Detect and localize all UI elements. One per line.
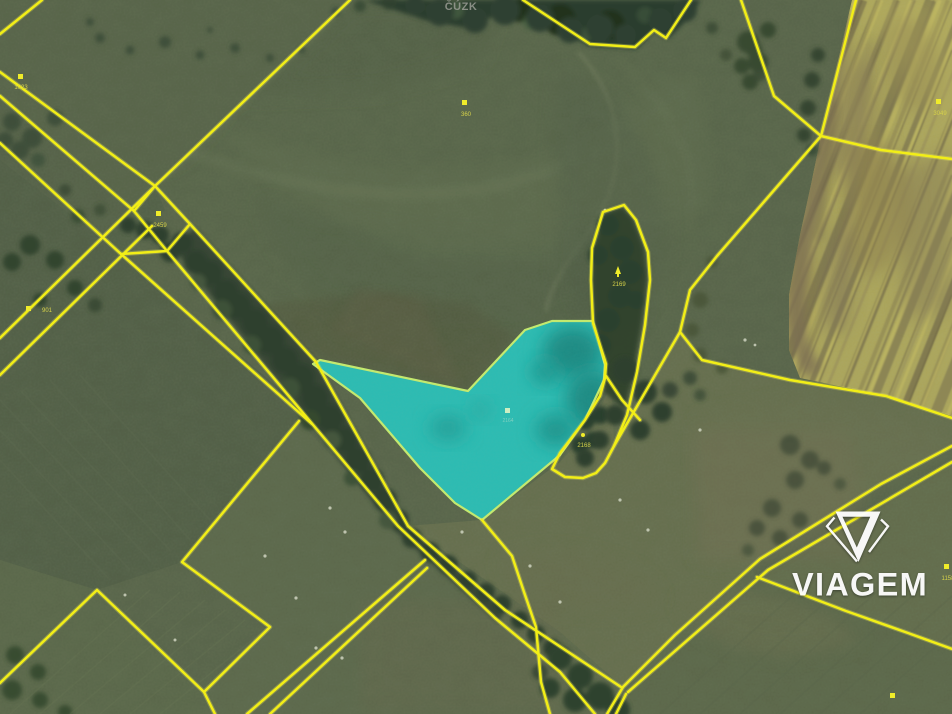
svg-text:901: 901 <box>42 308 53 314</box>
svg-text:2164: 2164 <box>502 418 513 424</box>
svg-text:1023: 1023 <box>14 85 28 91</box>
svg-text:1158: 1158 <box>942 576 952 582</box>
svg-text:3049: 3049 <box>933 111 947 117</box>
svg-text:ČÚZK: ČÚZK <box>445 0 478 13</box>
svg-text:VIAGEM: VIAGEM <box>792 567 928 603</box>
svg-text:2459: 2459 <box>153 223 167 229</box>
svg-text:360: 360 <box>461 112 472 118</box>
svg-text:2168: 2168 <box>577 443 591 449</box>
svg-text:2169: 2169 <box>612 282 626 288</box>
